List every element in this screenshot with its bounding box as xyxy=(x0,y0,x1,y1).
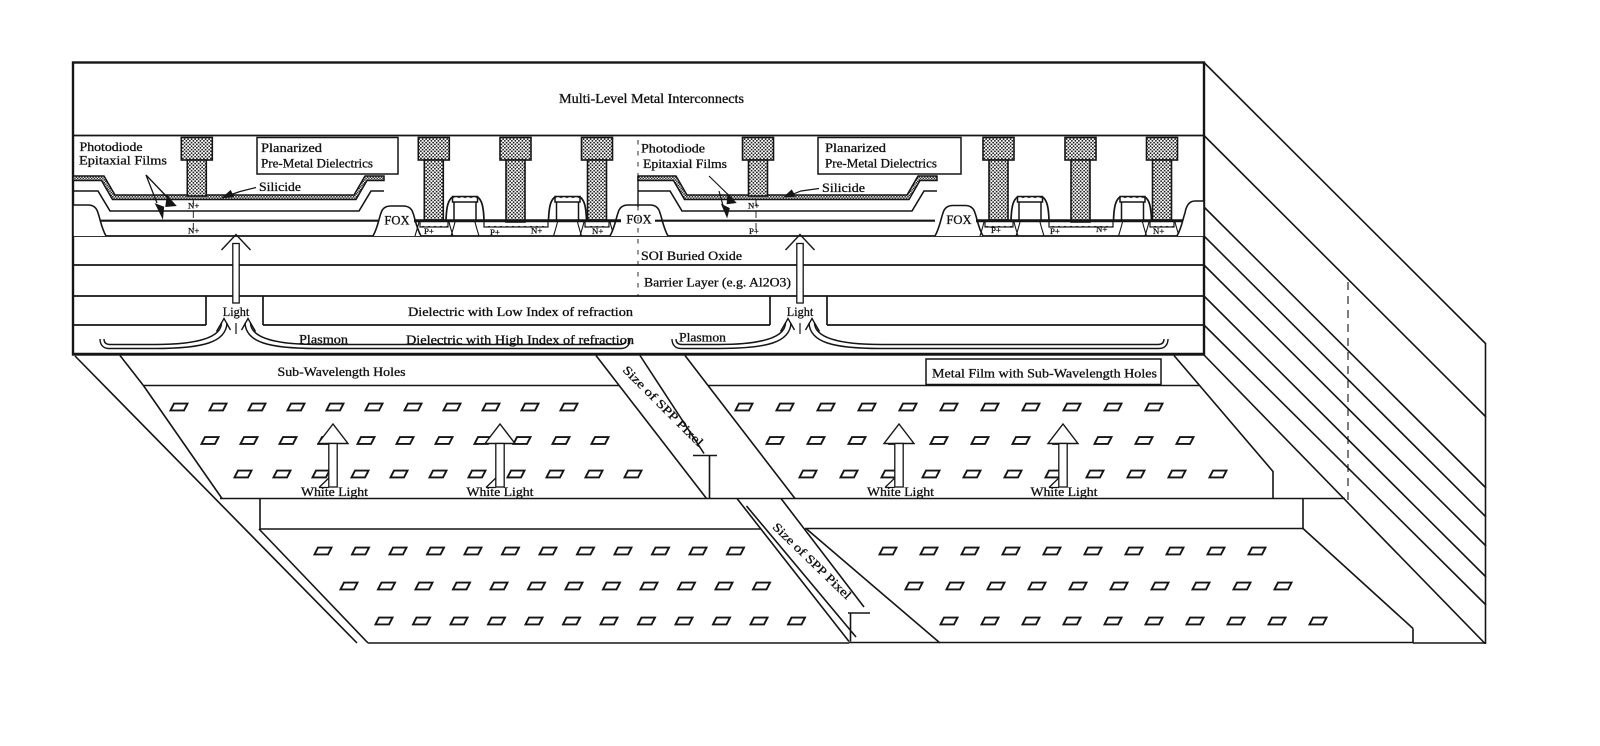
svg-text:Pre-Metal Dielectrics: Pre-Metal Dielectrics xyxy=(825,157,937,171)
svg-text:Epitaxial Films: Epitaxial Films xyxy=(79,154,167,168)
svg-text:FOX: FOX xyxy=(384,214,409,228)
svg-text:SOI Buried Oxide: SOI Buried Oxide xyxy=(641,249,742,263)
svg-text:Plasmon: Plasmon xyxy=(679,331,726,345)
svg-text:P+: P+ xyxy=(1050,226,1060,236)
svg-text:White Light: White Light xyxy=(867,485,935,499)
svg-text:N+: N+ xyxy=(531,226,542,236)
svg-text:Light: Light xyxy=(223,305,250,319)
svg-text:P+: P+ xyxy=(991,225,1001,235)
svg-text:White Light: White Light xyxy=(301,485,369,499)
svg-text:Silicide: Silicide xyxy=(822,181,865,195)
svg-text:Multi-Level Metal Interconnect: Multi-Level Metal Interconnects xyxy=(559,91,744,106)
svg-text:N+: N+ xyxy=(1153,226,1164,236)
svg-text:White Light: White Light xyxy=(1031,485,1099,499)
svg-text:Barrier Layer (e.g. Al2O3): Barrier Layer (e.g. Al2O3) xyxy=(644,276,791,290)
svg-text:Plasmon: Plasmon xyxy=(299,333,348,347)
svg-text:N+: N+ xyxy=(592,226,603,236)
svg-text:Light: Light xyxy=(787,305,814,319)
svg-text:Planarized: Planarized xyxy=(825,141,886,155)
svg-text:N+: N+ xyxy=(188,226,199,236)
svg-text:White Light: White Light xyxy=(467,485,535,499)
svg-text:N+: N+ xyxy=(188,201,199,211)
svg-text:Photodiode: Photodiode xyxy=(641,142,705,156)
svg-text:N+: N+ xyxy=(1096,224,1107,234)
svg-text:Pre-Metal Dielectrics: Pre-Metal Dielectrics xyxy=(261,157,373,171)
svg-text:P+: P+ xyxy=(424,226,434,236)
svg-text:P+: P+ xyxy=(749,226,759,236)
svg-text:Planarized: Planarized xyxy=(261,141,322,155)
svg-text:FOX: FOX xyxy=(626,213,651,227)
svg-text:FOX: FOX xyxy=(946,213,971,227)
svg-text:N+: N+ xyxy=(748,201,759,211)
svg-text:Metal Film with Sub-Wavelength: Metal Film with Sub-Wavelength Holes xyxy=(932,367,1157,381)
svg-text:Silicide: Silicide xyxy=(259,180,301,194)
svg-text:Sub-Wavelength Holes: Sub-Wavelength Holes xyxy=(278,365,406,379)
svg-text:Photodiode: Photodiode xyxy=(80,140,143,154)
svg-text:Dielectric with High Index of: Dielectric with High Index of refraction xyxy=(406,333,634,347)
svg-text:P+: P+ xyxy=(490,227,500,237)
svg-text:Dielectric with Low Index of r: Dielectric with Low Index of refraction xyxy=(408,305,633,319)
svg-text:Epitaxial Films: Epitaxial Films xyxy=(643,157,727,171)
